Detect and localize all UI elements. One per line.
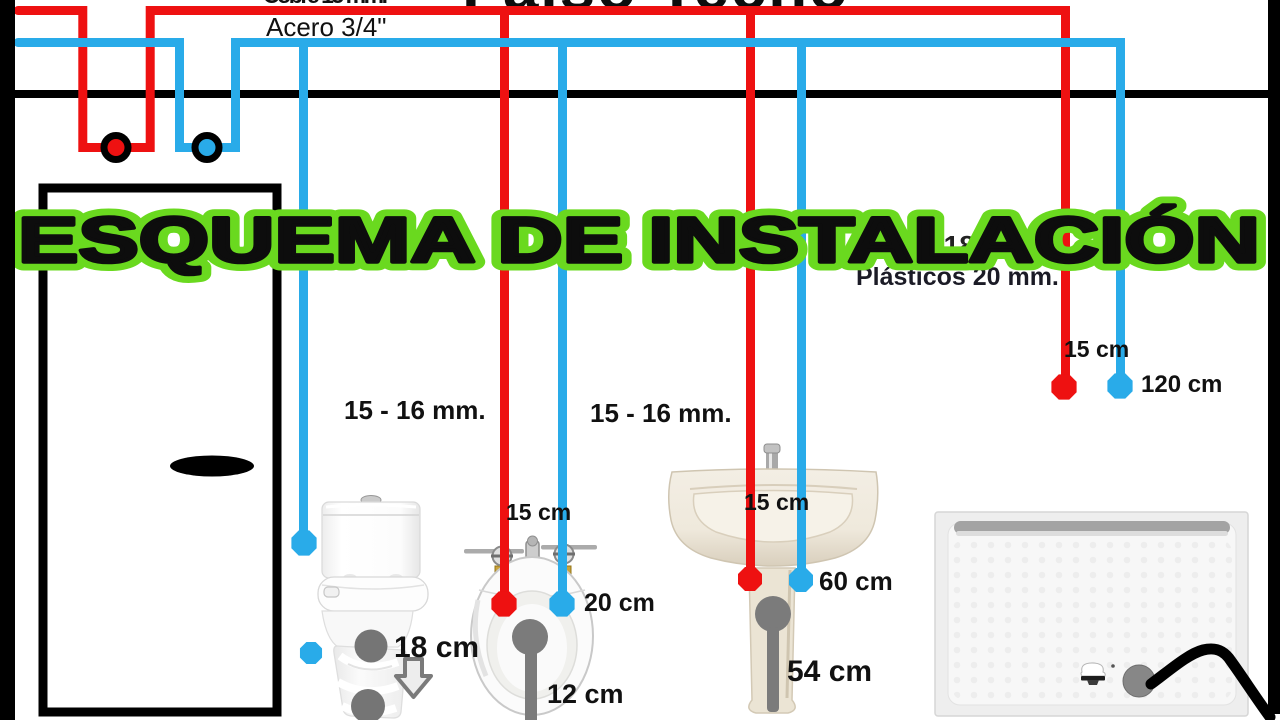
svg-text:15 cm: 15 cm [1064, 336, 1129, 362]
svg-text:54 cm: 54 cm [787, 655, 872, 688]
svg-text:12 cm: 12 cm [547, 679, 624, 709]
svg-text:Acero 3/4": Acero 3/4" [266, 12, 387, 42]
svg-text:15 - 16 mm.: 15 - 16 mm. [344, 395, 486, 425]
svg-text:15 cm: 15 cm [744, 489, 809, 515]
svg-text:15 cm: 15 cm [506, 499, 571, 525]
svg-text:ESQUEMA DE INSTALACIÓN: ESQUEMA DE INSTALACIÓN [18, 204, 1260, 276]
svg-text:20 cm: 20 cm [584, 589, 655, 617]
svg-text:15 - 16 mm.: 15 - 16 mm. [590, 398, 732, 428]
svg-text:18 cm: 18 cm [394, 631, 479, 664]
svg-text:120 cm: 120 cm [1141, 371, 1222, 398]
svg-text:60 cm: 60 cm [819, 566, 893, 596]
